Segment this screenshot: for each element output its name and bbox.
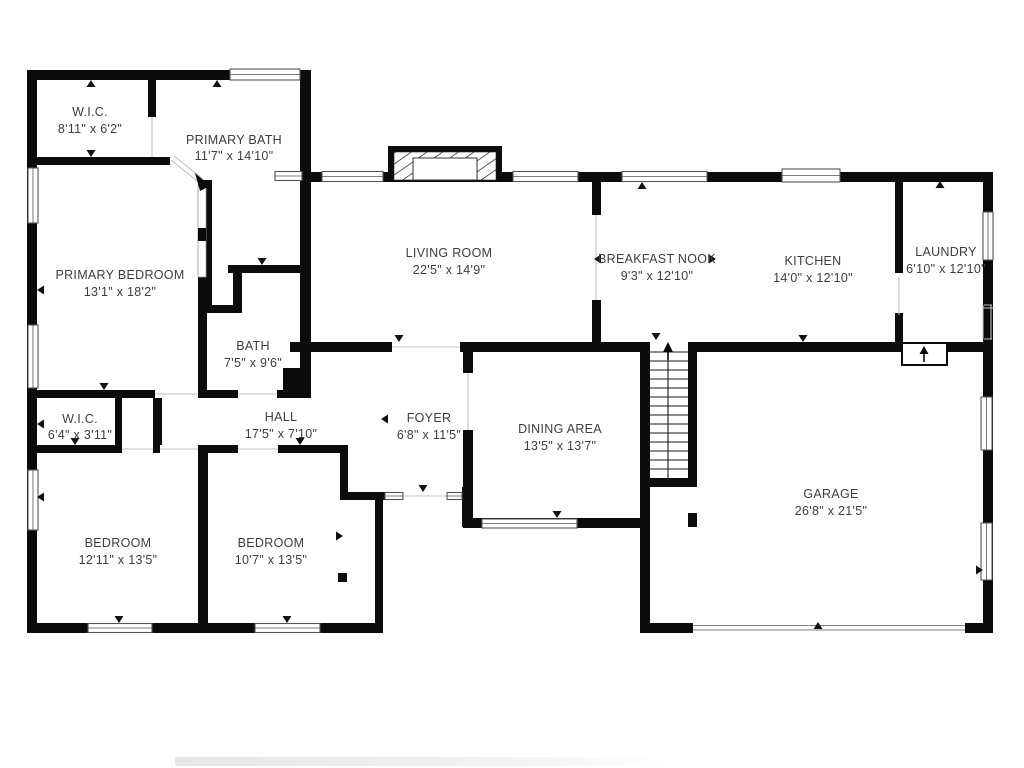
room-dims: 6'8" x 11'5" xyxy=(397,428,461,442)
window-slider xyxy=(622,172,707,182)
room-dims: 9'3" x 12'10" xyxy=(621,269,693,283)
room-dims: 7'5" x 9'6" xyxy=(224,356,282,370)
room-label-primary-bath: PRIMARY BATH 11'7" x 14'10" xyxy=(186,133,282,163)
walls xyxy=(27,70,993,633)
room-name: PRIMARY BEDROOM xyxy=(55,268,184,282)
window xyxy=(230,69,300,80)
room-label-wic-hall: W.I.C. 6'4" x 3'11" xyxy=(48,412,112,442)
room-dims: 10'7" x 13'5" xyxy=(235,553,307,567)
staircase xyxy=(648,342,688,478)
firebox xyxy=(413,158,477,180)
window xyxy=(322,172,383,182)
room-dims: 13'1" x 18'2" xyxy=(84,285,156,299)
room-name: KITCHEN xyxy=(785,254,842,268)
shower-glass-partition xyxy=(275,172,302,181)
room-label-kitchen: KITCHEN 14'0" x 12'10" xyxy=(773,254,853,285)
room-name: FOYER xyxy=(407,411,452,425)
window xyxy=(981,397,992,450)
room-dims: 6'4" x 3'11" xyxy=(48,428,112,442)
room-label-laundry: LAUNDRY 6'10" x 12'10" xyxy=(906,245,986,276)
room-label-breakfast-nook: BREAKFAST NOOK 9'3" x 12'10" xyxy=(598,252,716,283)
room-label-hall: HALL 17'5" x 7'10" xyxy=(245,410,317,441)
floor-plan-page: W.I.C. 8'11" x 6'2" PRIMARY BATH 11'7" x… xyxy=(0,0,1024,768)
room-dims: 12'11" x 13'5" xyxy=(79,553,158,567)
room-name: BATH xyxy=(236,339,270,353)
room-name: LAUNDRY xyxy=(915,245,977,259)
room-dims: 13'5" x 13'7" xyxy=(524,439,596,453)
pocket-door xyxy=(198,185,206,277)
room-label-living-room: LIVING ROOM 22'5" x 14'9" xyxy=(406,246,493,277)
room-label-bedroom-right: BEDROOM 10'7" x 13'5" xyxy=(235,536,307,567)
garage-door xyxy=(693,623,965,634)
room-name: BREAKFAST NOOK xyxy=(598,252,716,266)
window xyxy=(255,624,320,633)
room-label-primary-bedroom: PRIMARY BEDROOM 13'1" x 18'2" xyxy=(55,268,184,299)
room-label-bath: BATH 7'5" x 9'6" xyxy=(224,339,282,370)
room-name: PRIMARY BATH xyxy=(186,133,282,147)
dimension-ticks xyxy=(37,80,983,629)
footer-shadow-bar xyxy=(175,757,670,766)
garage-step xyxy=(902,343,947,365)
window xyxy=(981,523,992,580)
sidelight-window xyxy=(385,493,403,500)
room-name: BEDROOM xyxy=(238,536,305,550)
room-name: BEDROOM xyxy=(85,536,152,550)
window xyxy=(28,168,38,223)
room-name: W.I.C. xyxy=(72,105,108,119)
room-name: DINING AREA xyxy=(518,422,602,436)
room-dims: 26'8" x 21'5" xyxy=(795,504,867,518)
room-dims: 6'10" x 12'10" xyxy=(906,262,986,276)
window xyxy=(28,470,38,530)
floor-plan-svg: W.I.C. 8'11" x 6'2" PRIMARY BATH 11'7" x… xyxy=(0,0,1024,768)
room-dims: 11'7" x 14'10" xyxy=(195,149,274,163)
window xyxy=(513,172,578,182)
stairs-up-arrow xyxy=(663,342,673,352)
room-label-garage: GARAGE 26'8" x 21'5" xyxy=(795,487,867,518)
fireplace xyxy=(388,146,502,180)
room-label-bedroom-left: BEDROOM 12'11" x 13'5" xyxy=(79,536,158,567)
window xyxy=(782,169,840,182)
room-dims: 8'11" x 6'2" xyxy=(58,122,122,136)
window xyxy=(28,325,38,388)
room-dims: 22'5" x 14'9" xyxy=(413,263,485,277)
room-name: HALL xyxy=(265,410,297,424)
window xyxy=(983,212,993,260)
room-label-dining-area: DINING AREA 13'5" x 13'7" xyxy=(518,422,602,453)
room-name: LIVING ROOM xyxy=(406,246,493,260)
sidelight-window xyxy=(447,493,462,500)
window xyxy=(88,624,152,633)
room-label-wic-primary: W.I.C. 8'11" x 6'2" xyxy=(58,105,122,136)
room-label-foyer: FOYER 6'8" x 11'5" xyxy=(397,411,461,442)
room-name: GARAGE xyxy=(803,487,858,501)
room-dims: 17'5" x 7'10" xyxy=(245,427,317,441)
window xyxy=(482,519,577,528)
room-name: W.I.C. xyxy=(62,412,98,426)
room-dims: 14'0" x 12'10" xyxy=(773,271,853,285)
